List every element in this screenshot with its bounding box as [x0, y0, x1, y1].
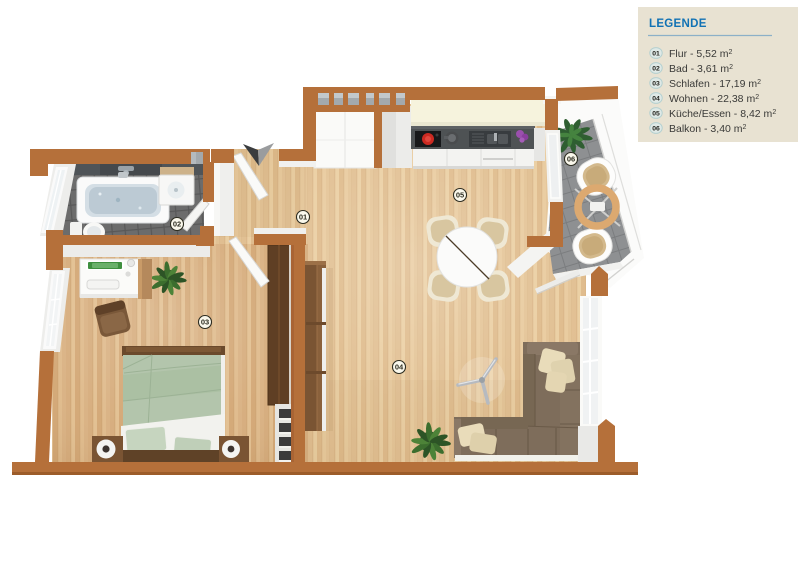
svg-text:LEGENDE: LEGENDE: [649, 18, 707, 30]
svg-text:Balkon - 3,40 m2: Balkon - 3,40 m2: [669, 123, 747, 135]
svg-text:Bad - 3,61 m2: Bad - 3,61 m2: [669, 63, 733, 75]
svg-text:06: 06: [652, 125, 660, 132]
svg-text:Schlafen - 17,19 m2: Schlafen - 17,19 m2: [669, 78, 761, 90]
svg-text:03: 03: [201, 318, 209, 327]
svg-text:06: 06: [567, 155, 575, 164]
svg-text:01: 01: [652, 50, 660, 57]
svg-text:04: 04: [395, 363, 404, 372]
svg-text:05: 05: [652, 110, 660, 117]
svg-text:03: 03: [652, 80, 660, 87]
svg-text:Küche/Essen - 8,42 m2: Küche/Essen - 8,42 m2: [669, 108, 776, 120]
svg-text:01: 01: [299, 213, 307, 222]
svg-text:Wohnen - 22,38 m2: Wohnen - 22,38 m2: [669, 93, 759, 105]
svg-text:Flur - 5,52 m2: Flur - 5,52 m2: [669, 48, 733, 60]
svg-text:02: 02: [173, 220, 181, 229]
svg-text:04: 04: [652, 95, 660, 102]
svg-text:05: 05: [456, 191, 464, 200]
svg-text:02: 02: [652, 65, 660, 72]
